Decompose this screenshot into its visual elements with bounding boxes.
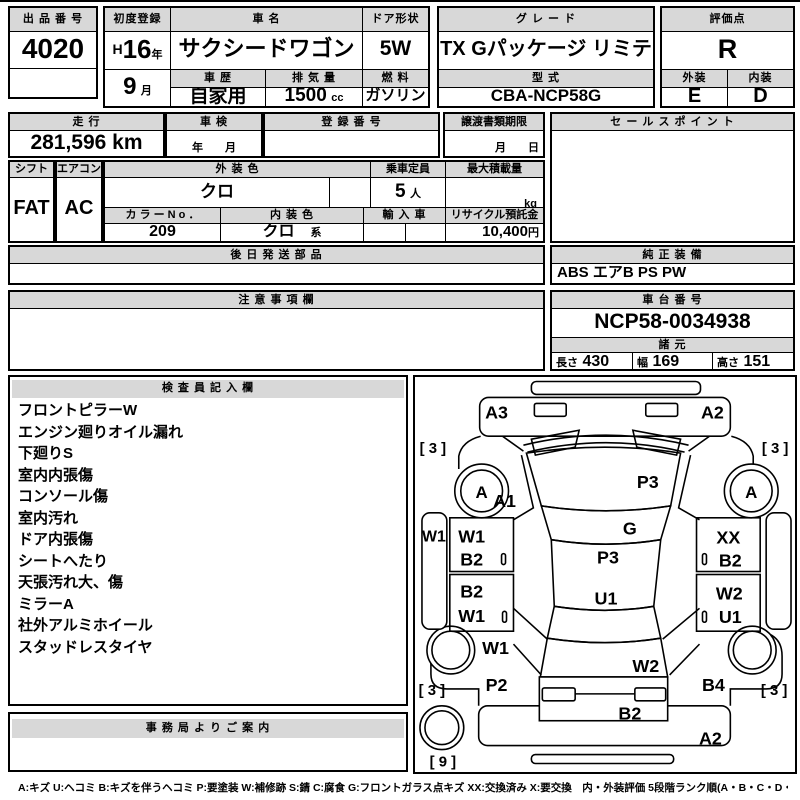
rear-left-tire-depth: [ 3 ] xyxy=(419,682,446,699)
office-box: 事 務 局 よ り ご 案 内 xyxy=(8,712,408,772)
inspector-item: 室内内張傷 xyxy=(18,465,402,487)
front-left-tire-depth: [ 3 ] xyxy=(420,440,447,457)
inspector-item: フロントピラーW xyxy=(18,400,402,422)
rear-right-wheel-inner xyxy=(733,631,771,669)
aircon-label: エアコン xyxy=(57,162,101,178)
damage-roof-center: U1 xyxy=(595,588,618,608)
car-name-value: サクシードワゴン xyxy=(170,32,362,70)
damage-windshield: P3 xyxy=(637,472,659,492)
fuel-label: 燃 料 xyxy=(362,70,428,88)
inspector-item: 社外アルミホイール xyxy=(18,615,402,637)
lot-number-empty xyxy=(10,69,96,97)
damage-left-rear-door-1: B2 xyxy=(460,581,483,601)
rear-panel xyxy=(539,677,667,721)
vehicle-header-box: 初度登録 H16年 9 月 車 名 サクシードワゴン 車 歴 自家用 排 気 量… xyxy=(103,6,430,108)
displacement-value: 1500 cc xyxy=(265,88,362,106)
transfer-deadline-label: 譲渡書類期限 xyxy=(445,114,543,131)
first-reg-label: 初度登録 xyxy=(105,8,170,32)
grade-value: TX Gパッケージ リミテッド xyxy=(439,32,653,70)
car-name-label: 車 名 xyxy=(170,8,362,32)
exterior-value: E xyxy=(662,88,727,106)
inspector-item: ミラーA xyxy=(18,594,402,616)
inspector-item: ドア内張傷 xyxy=(18,529,402,551)
color-no-value: 209 xyxy=(105,224,220,241)
damage-rear-bumper: A2 xyxy=(699,729,722,749)
capacity-value: 5 人 xyxy=(370,178,445,208)
model-code-label: 型 式 xyxy=(439,70,653,88)
later-parts-label: 後 日 発 送 部 品 xyxy=(10,247,543,264)
damage-left-quarter-2: P2 xyxy=(486,675,508,695)
door-shape-label: ドア形状 xyxy=(362,8,428,32)
recycle-deposit-label: リサイクル預託金 xyxy=(445,208,543,224)
front-plate-right xyxy=(646,403,678,416)
right-rear-door-handle xyxy=(702,611,706,622)
damage-left-front-door-1: W1 xyxy=(458,527,485,547)
color-capacity-box: 外 装 色 乗車定員 最大積載量 クロ 5 人 kg カ ラ ー N o ． 内… xyxy=(103,160,545,243)
inspector-item: 天張汚れ大、傷 xyxy=(18,572,402,594)
spec-length: 長さ 430 xyxy=(552,353,632,369)
shift-label: シフト xyxy=(10,162,53,178)
spare-wheel-inner xyxy=(425,711,459,745)
damage-right-front-door-2: B2 xyxy=(719,551,742,571)
inspector-items: フロントピラーW エンジン廻りオイル漏れ 下廻りS 室内内張傷 コンソール傷 室… xyxy=(18,400,402,700)
hood-edge-right xyxy=(689,436,710,451)
exterior-label: 外装 xyxy=(662,70,727,88)
rear-bottom-strip xyxy=(531,755,673,764)
damage-front-bumper-right: A2 xyxy=(701,402,724,422)
damage-rear-panel: B2 xyxy=(618,704,641,724)
shift-value: FAT xyxy=(10,178,53,241)
chassis-label: 車 台 番 号 xyxy=(552,292,793,309)
damage-front-bumper-left: A3 xyxy=(485,402,508,422)
chassis-value: NCP58-0034938 xyxy=(552,309,793,338)
inspector-item: 室内汚れ xyxy=(18,508,402,530)
imported-label: 輸 入 車 xyxy=(363,208,445,224)
ext-color-value: クロ xyxy=(105,178,329,208)
first-reg-era: H xyxy=(112,41,122,57)
damage-right-front-door-1: XX xyxy=(716,528,740,548)
damage-left-front-door-2: B2 xyxy=(460,550,483,570)
inspector-box: 検 査 員 記 入 欄 フロントピラーW エンジン廻りオイル漏れ 下廻りS 室内… xyxy=(8,375,408,706)
grade-label: グ レ ー ド xyxy=(439,8,653,32)
damage-front-glass: G xyxy=(623,519,637,539)
lot-number-label: 出 品 番 号 xyxy=(10,8,96,32)
mileage-box: 走 行 281,596 km xyxy=(8,112,165,158)
damage-left-sill: W1 xyxy=(422,529,446,546)
windshield-lower xyxy=(541,506,670,544)
score-label: 評価点 xyxy=(662,8,793,32)
right-front-door-handle xyxy=(702,554,706,565)
first-reg-month: 9 月 xyxy=(105,70,170,106)
car-damage-diagram: A3 A2 P3 G P3 U1 A A A1 W1 W1 B2 B2 W1 W… xyxy=(415,377,795,772)
notes-value xyxy=(10,309,543,369)
grade-box: グ レ ー ド TX Gパッケージ リミテッド 型 式 CBA-NCP58G xyxy=(437,6,655,108)
displacement-label: 排 気 量 xyxy=(265,70,362,88)
equipment-value: ABS エアB PS PW xyxy=(552,264,793,283)
inspector-item: スタッドレスタイヤ xyxy=(18,637,402,659)
score-box: 評価点 R 外装 内装 E D xyxy=(660,6,795,108)
sales-point-value xyxy=(552,131,793,241)
damage-diagram-box: A3 A2 P3 G P3 U1 A A A1 W1 W1 B2 B2 W1 W… xyxy=(413,375,797,774)
shift-box: シフト FAT xyxy=(8,160,55,243)
sales-point-label: セ ー ル ス ポ イ ン ト xyxy=(552,114,793,131)
inspector-item: エンジン廻りオイル漏れ xyxy=(18,422,402,444)
notes-box: 注 意 事 項 欄 xyxy=(8,290,545,371)
front-left-wheel-code: A xyxy=(476,483,488,502)
mileage-value: 281,596 km xyxy=(10,131,163,156)
right-sill xyxy=(766,513,791,629)
inspection-placeholder: 年 月 xyxy=(167,139,261,156)
office-value xyxy=(12,740,404,768)
later-parts-box: 後 日 発 送 部 品 xyxy=(8,245,545,285)
left-rear-door-handle xyxy=(503,611,507,622)
max-load-label: 最大積載量 xyxy=(445,162,543,178)
capacity-label: 乗車定員 xyxy=(370,162,445,178)
damage-right-rear-door-1: W2 xyxy=(716,583,743,603)
notes-label: 注 意 事 項 欄 xyxy=(10,292,543,309)
spare-tire-depth: [ 9 ] xyxy=(430,753,457,770)
sheet-top-border xyxy=(0,0,800,2)
chassis-box: 車 台 番 号 NCP58-0034938 諸 元 長さ 430 幅 169 高… xyxy=(550,290,795,371)
spec-width: 幅 169 xyxy=(632,353,712,369)
recycle-deposit-value: 10,400円 xyxy=(445,224,543,241)
ext-color-extra-cell xyxy=(329,178,370,208)
reg-no-value xyxy=(265,131,438,156)
damage-roof-front: P3 xyxy=(597,548,619,568)
lot-number-value: 4020 xyxy=(10,32,96,69)
equipment-label: 純 正 装 備 xyxy=(552,247,793,264)
right-c-pillar xyxy=(663,608,700,675)
rear-left-wheel-inner xyxy=(432,631,470,669)
inspector-item: シートへたり xyxy=(18,551,402,573)
imported-sub-cell xyxy=(405,224,445,241)
ext-color-label: 外 装 色 xyxy=(105,162,370,178)
model-code-value: CBA-NCP58G xyxy=(439,88,653,106)
max-load-value: kg xyxy=(445,178,543,208)
damage-left-rear-door-2: W1 xyxy=(458,606,485,626)
reg-no-box: 登 録 番 号 xyxy=(263,112,440,158)
transfer-deadline-placeholder: 月 日 xyxy=(445,139,539,156)
history-label: 車 歴 xyxy=(170,70,265,88)
inspection-box: 車 検 年 月 xyxy=(165,112,263,158)
damage-left-fender: A1 xyxy=(493,491,516,511)
inspector-label: 検 査 員 記 入 欄 xyxy=(12,380,404,398)
int-color-label: 内 装 色 xyxy=(220,208,363,224)
front-right-tire-depth: [ 3 ] xyxy=(762,440,789,457)
front-plate-left xyxy=(534,403,566,416)
interior-label: 内装 xyxy=(727,70,793,88)
later-parts-value xyxy=(10,264,543,283)
front-bumper xyxy=(480,397,731,436)
damage-right-quarter: B4 xyxy=(702,675,725,695)
door-shape-value: 5W xyxy=(362,32,428,70)
damage-right-rear-door-2: U1 xyxy=(719,607,742,627)
interior-value: D xyxy=(727,88,793,106)
aircon-box: エアコン AC xyxy=(55,160,103,243)
int-color-value: クロ 系 xyxy=(220,224,363,241)
hood-edge-left xyxy=(503,436,524,451)
transfer-deadline-box: 譲渡書類期限 月 日 xyxy=(443,112,545,158)
left-front-door-handle xyxy=(502,554,506,565)
office-label: 事 務 局 よ り ご 案 内 xyxy=(12,719,404,738)
inspector-item: コンソール傷 xyxy=(18,486,402,508)
front-right-wheel-code: A xyxy=(745,483,757,502)
damage-left-quarter-1: W1 xyxy=(482,638,509,658)
rear-window xyxy=(547,606,660,642)
auction-sheet: { "colors":{"header_bg":"#d8d8d8","borde… xyxy=(0,0,800,800)
mileage-label: 走 行 xyxy=(10,114,163,131)
reg-no-label: 登 録 番 号 xyxy=(265,114,438,131)
first-reg-year: H16年 xyxy=(105,32,170,70)
spec-height: 高さ 151 xyxy=(712,353,793,369)
front-top-strip xyxy=(531,382,700,395)
history-value: 自家用 xyxy=(170,88,265,106)
damage-tailgate: W2 xyxy=(632,656,659,676)
lot-number-box: 出 品 番 号 4020 xyxy=(8,6,98,99)
specs-label: 諸 元 xyxy=(552,338,793,353)
rear-right-tire-depth: [ 3 ] xyxy=(761,682,788,699)
inspection-label: 車 検 xyxy=(167,114,261,131)
legend: A:キズ U:ヘコミ B:キズを伴うヘコミ P:要塗装 W:補修跡 S:錆 C:… xyxy=(18,780,788,796)
aircon-value: AC xyxy=(57,178,101,241)
sales-point-box: セ ー ル ス ポ イ ン ト xyxy=(550,112,795,243)
inspector-item: 下廻りS xyxy=(18,443,402,465)
color-no-label: カ ラ ー N o ． xyxy=(105,208,220,224)
score-value: R xyxy=(662,32,793,70)
equipment-box: 純 正 装 備 ABS エアB PS PW xyxy=(550,245,795,285)
fuel-value: ガソリン xyxy=(362,88,428,106)
imported-value xyxy=(363,224,445,241)
right-a-pillar xyxy=(679,455,700,520)
